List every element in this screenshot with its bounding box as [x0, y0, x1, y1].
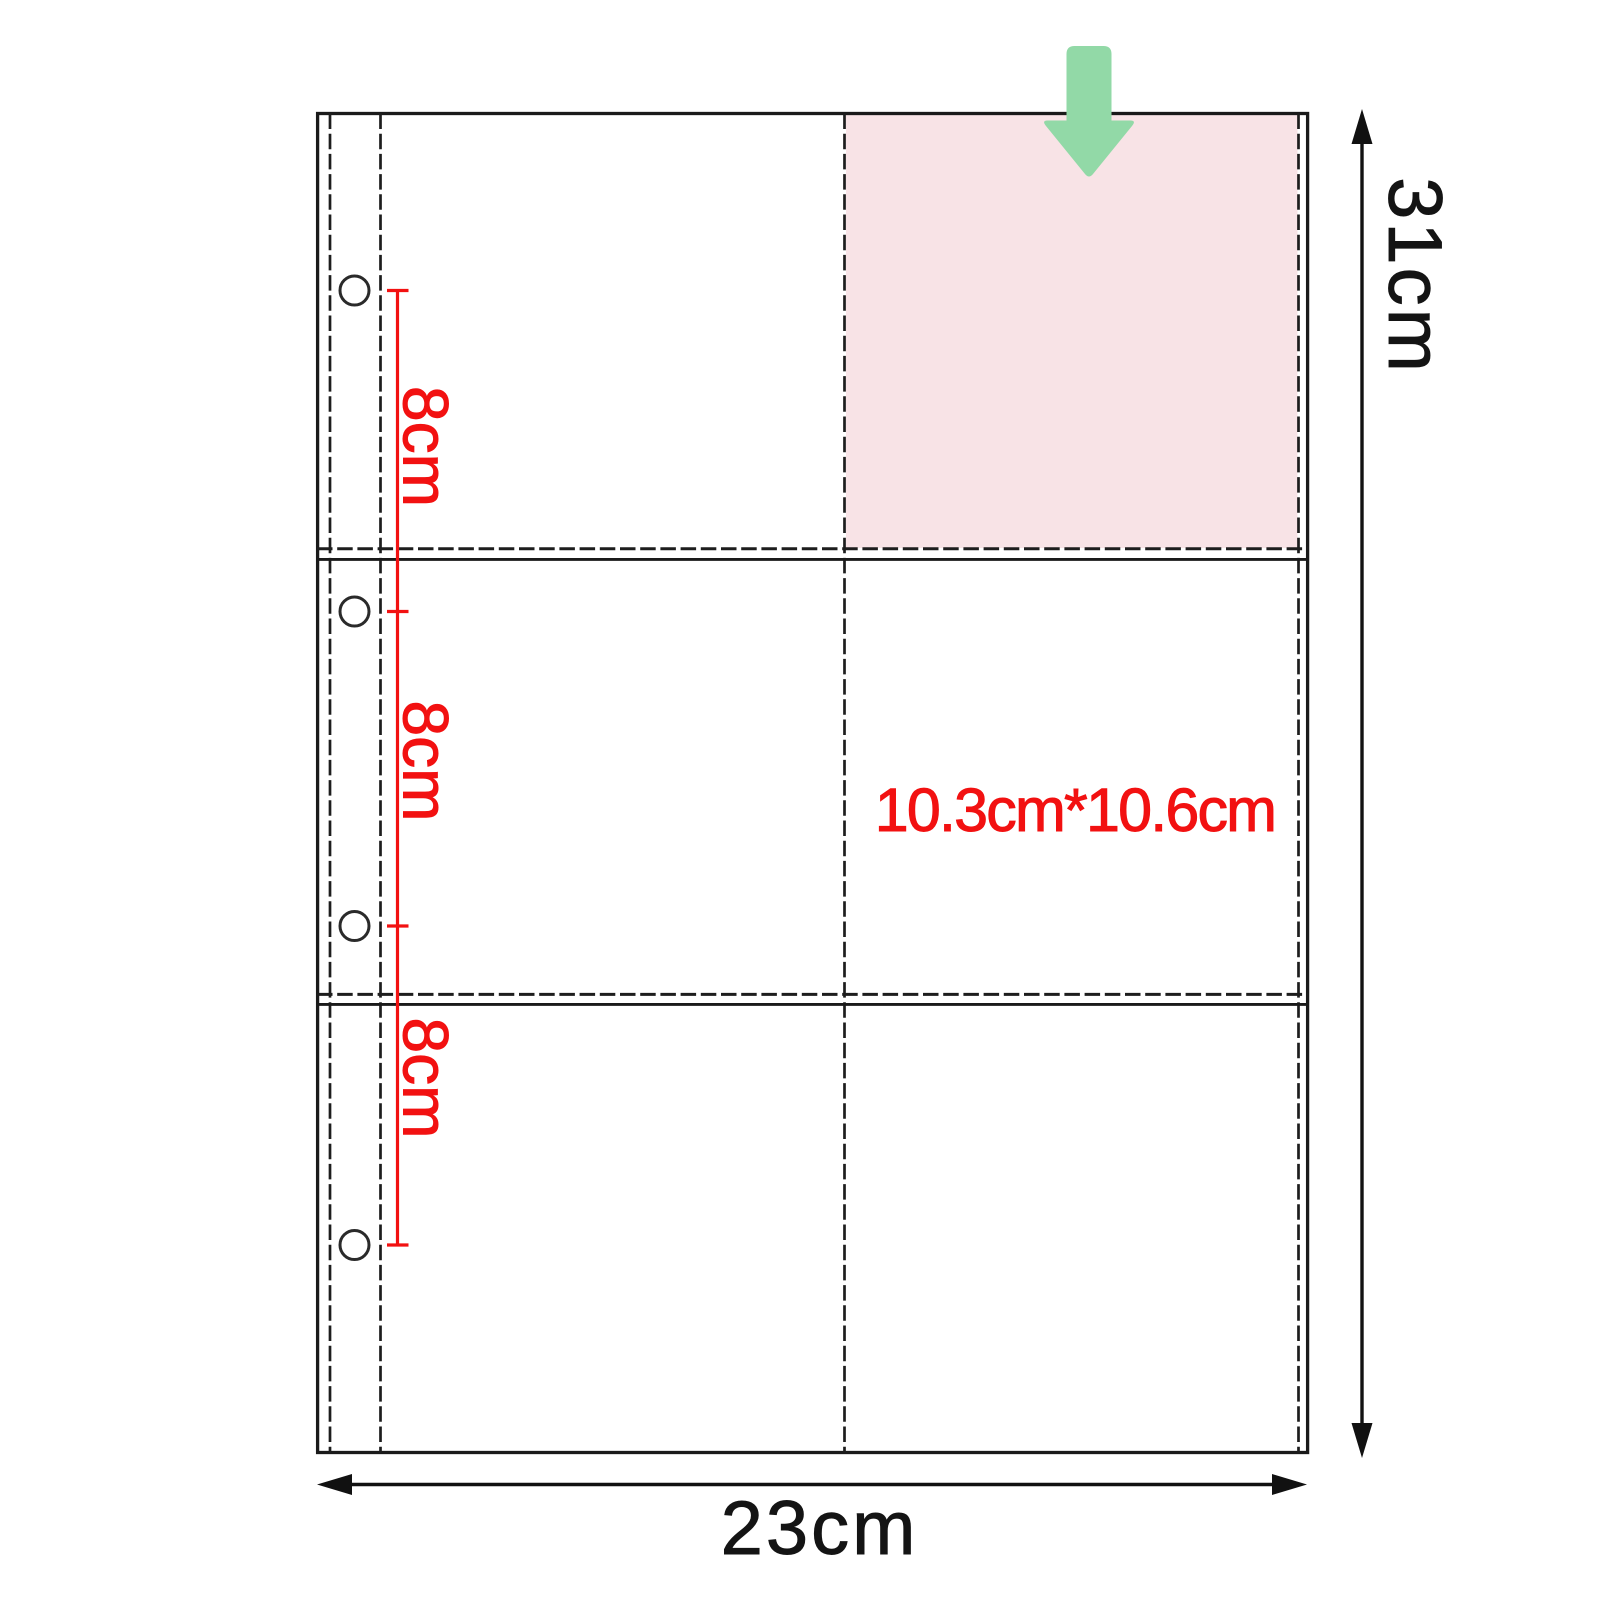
svg-text:8cm: 8cm: [390, 386, 462, 507]
svg-text:31cm: 31cm: [1372, 177, 1457, 375]
svg-text:8cm: 8cm: [390, 1018, 462, 1139]
svg-text:10.3cm*10.6cm: 10.3cm*10.6cm: [875, 776, 1275, 844]
svg-text:23cm: 23cm: [721, 1486, 919, 1571]
svg-text:8cm: 8cm: [390, 701, 462, 822]
